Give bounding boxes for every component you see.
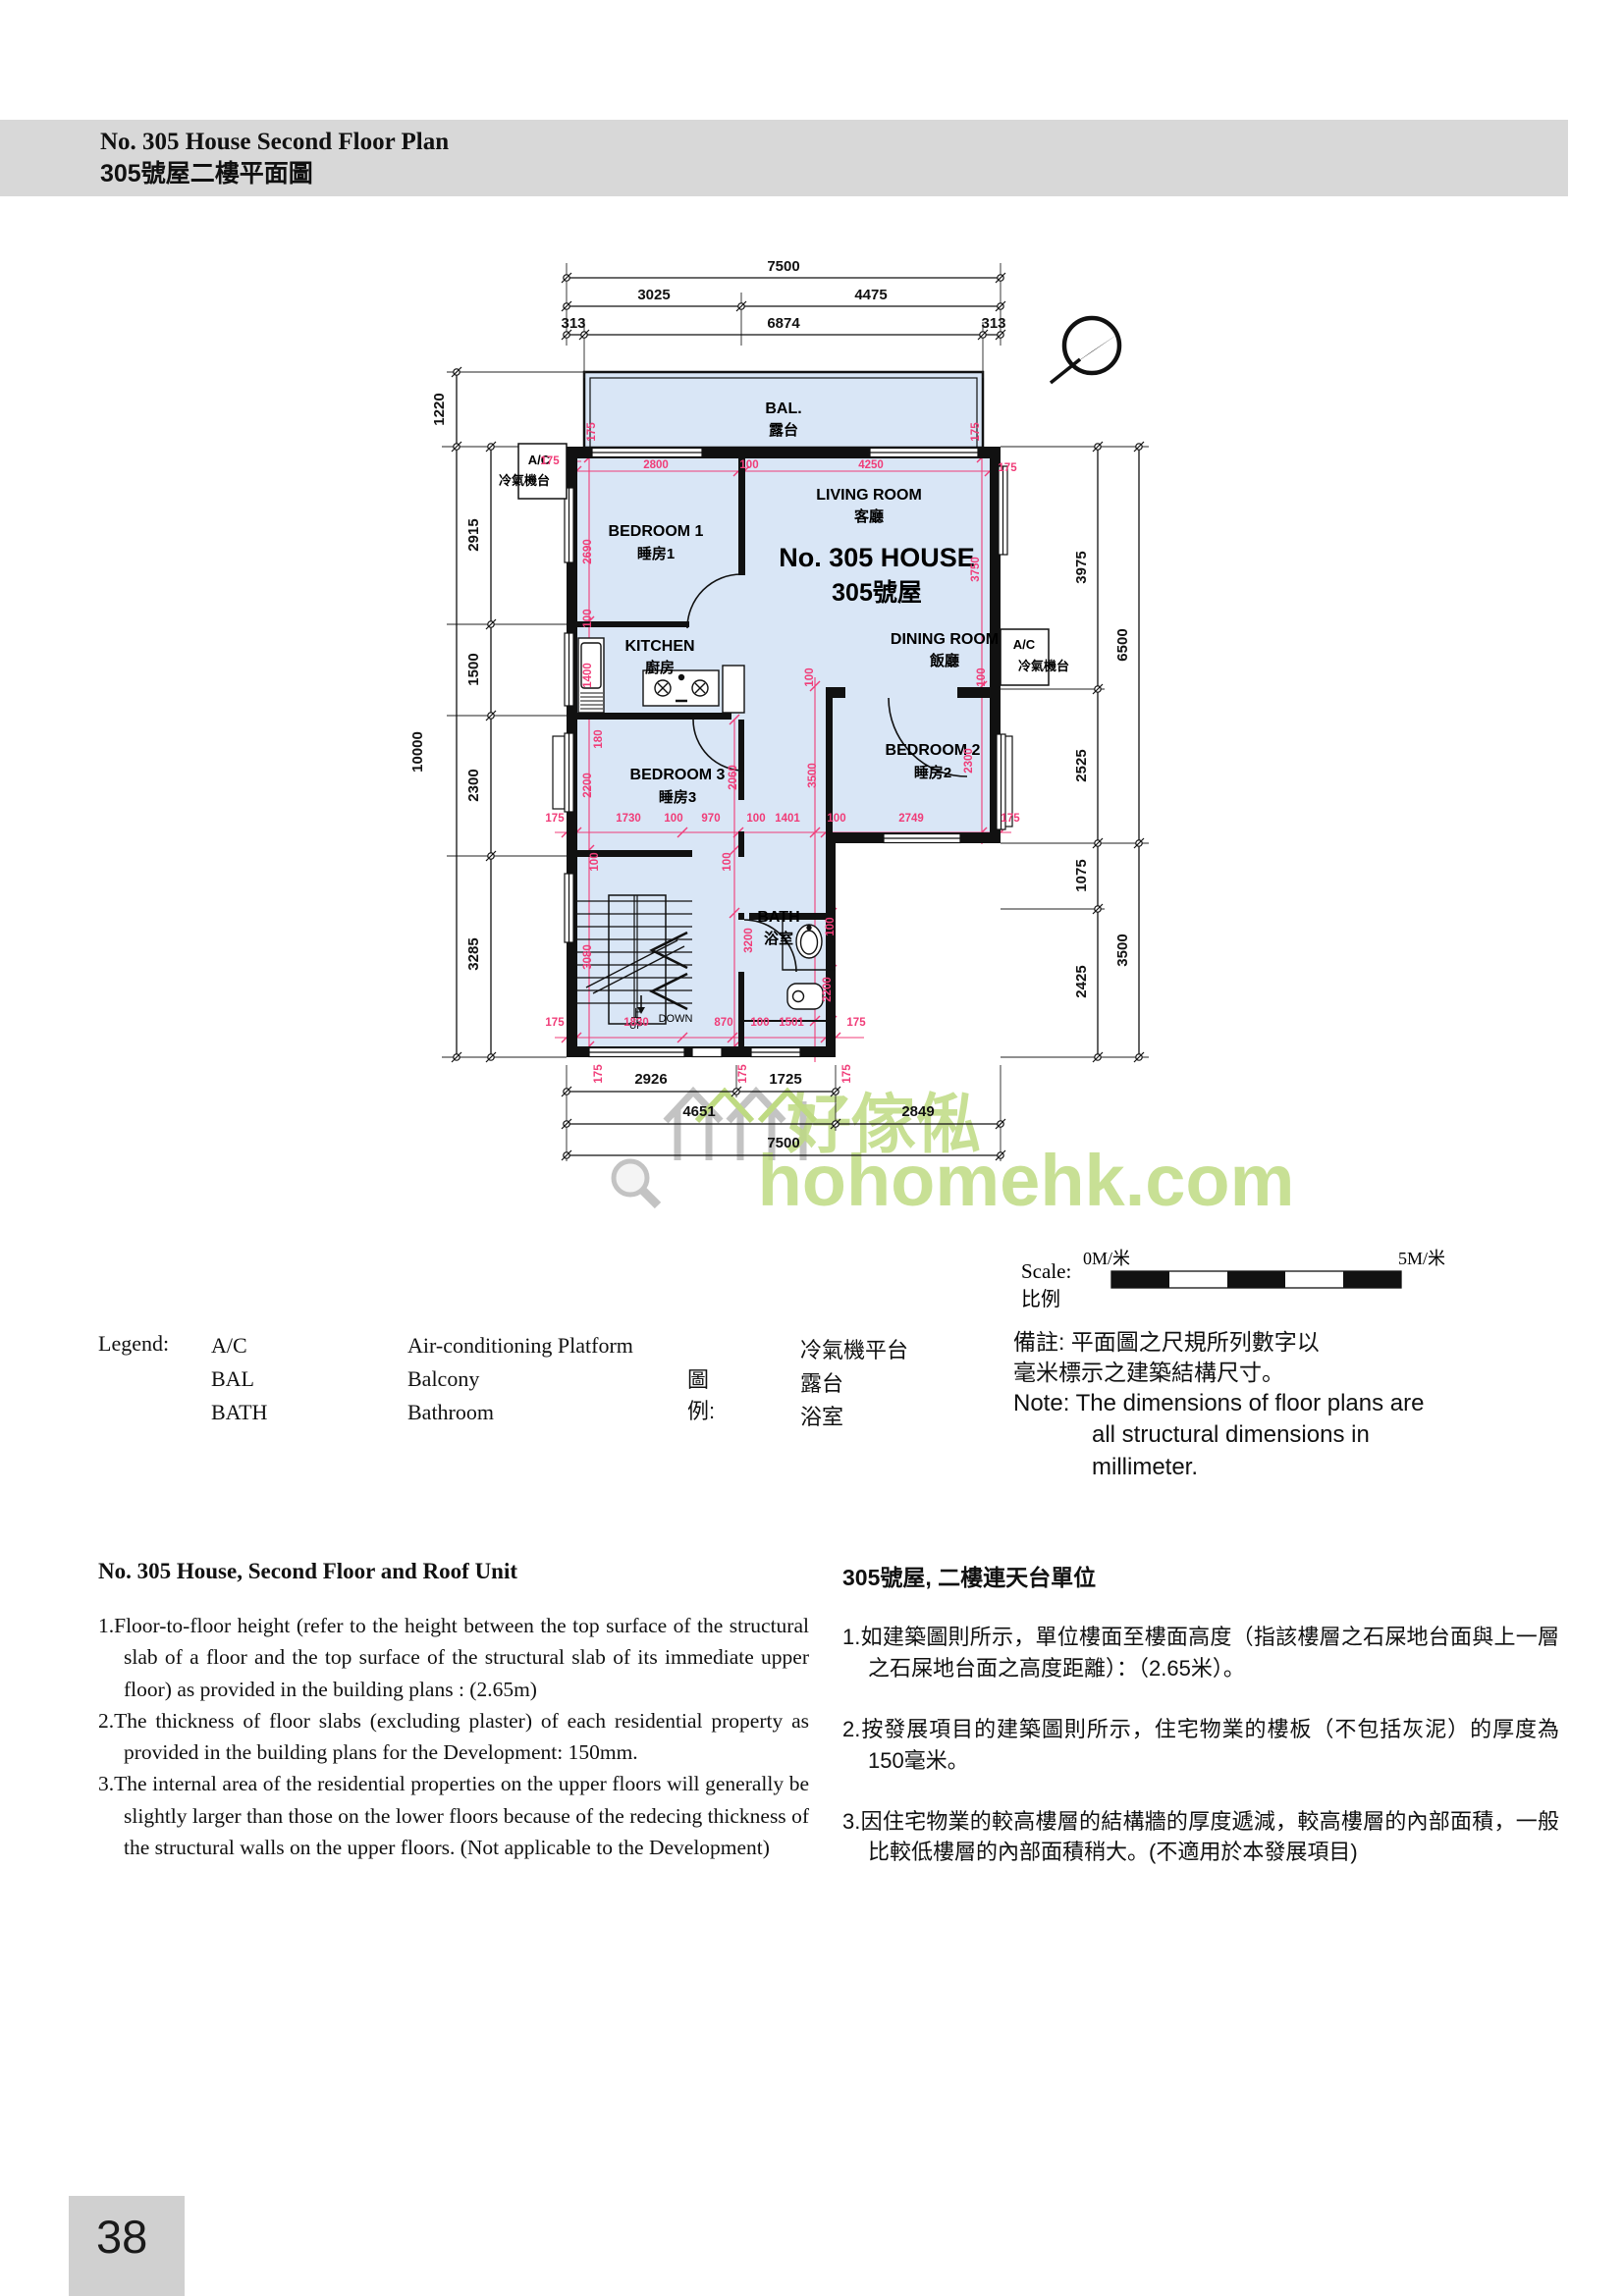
scale-label-zh: 比例	[1021, 1288, 1060, 1310]
legend-code: BAL	[211, 1366, 254, 1392]
brochure-page: No. 305 House Second Floor Plan 305號屋二樓平…	[0, 0, 1624, 2296]
legend-code: A/C	[211, 1333, 247, 1359]
dimension-label: 2425	[1073, 965, 1090, 997]
dimension-label: 2200	[582, 773, 594, 798]
legend-heading-en: Legend:	[98, 1331, 169, 1357]
dimension-label: 3500	[1114, 934, 1131, 966]
item-number: 1.	[842, 1625, 860, 1649]
dimension-label: 175	[737, 1064, 749, 1084]
dimension-label: 10000	[409, 731, 426, 773]
item-text: The internal area of the residential pro…	[114, 1772, 809, 1859]
dimension-label: 1075	[1073, 859, 1090, 891]
dimension-label: 180	[593, 729, 605, 748]
dimension-label: 100	[664, 813, 682, 825]
dimension-label: 175	[586, 422, 598, 442]
dimension-label: 175	[998, 462, 1017, 474]
dimension-label: 313	[981, 315, 1005, 332]
north-arrow-icon	[1051, 318, 1121, 383]
room-label-bedroom2-zh: 睡房2	[914, 764, 951, 781]
dimension-label: 2060	[728, 765, 739, 790]
legend-desc-zh: 浴室	[800, 1400, 843, 1431]
item-number: 2.	[98, 1709, 114, 1733]
dimension-label: 1725	[769, 1071, 801, 1088]
section-item: 3.The internal area of the residential p…	[98, 1768, 809, 1863]
room-label-living-en: LIVING ROOM	[816, 487, 922, 504]
legend-heading-zh: 圖例:	[687, 1362, 715, 1425]
item-text: Floor-to-floor height (refer to the heig…	[114, 1614, 809, 1701]
dimension-label: 7500	[767, 1135, 799, 1151]
item-number: 2.	[842, 1717, 860, 1741]
dimension-label: 100	[589, 852, 601, 871]
dimension-label: 175	[540, 455, 560, 467]
note-text-en-1: Note: The dimensions of floor plans are	[1013, 1388, 1593, 1419]
dimension-label: 2300	[465, 769, 482, 801]
dimension-label: 1830	[623, 1017, 649, 1029]
section-item: 2.按發展項目的建築圖則所示，住宅物業的樓板（不包括灰泥）的厚度為150毫米。	[842, 1714, 1559, 1777]
scale-end-label: 5M/米	[1398, 1249, 1445, 1268]
scale-label-en: Scale:	[1021, 1259, 1071, 1283]
dimension-label: 4651	[682, 1103, 715, 1120]
room-label-dining-en: DINING ROOM	[891, 631, 999, 648]
dimension-label: 2849	[901, 1103, 934, 1120]
dimension-label: 100	[582, 609, 594, 627]
stairs-down-en: DOWN	[659, 1013, 693, 1025]
ac-left-label-zh: 冷氣機台	[499, 473, 550, 488]
scale-start-label: 0M/米	[1083, 1249, 1130, 1268]
dimension-label: 2749	[898, 813, 924, 825]
dimension-label: 1401	[775, 813, 800, 825]
section-item: 2.The thickness of floor slabs (excludin…	[98, 1705, 809, 1769]
dimension-label: 3500	[807, 763, 819, 788]
dimension-label: 3975	[1073, 551, 1090, 583]
item-number: 3.	[98, 1772, 114, 1795]
dimension-label: 7500	[767, 258, 799, 275]
legend-code: BATH	[211, 1400, 267, 1425]
dimension-label: 970	[701, 813, 720, 825]
dimension-label: 6874	[767, 315, 800, 332]
dimension-label: 175	[593, 1064, 605, 1084]
dimension-label: 100	[746, 813, 765, 825]
dimension-label: 100	[750, 1017, 769, 1029]
dimension-label: 2300	[963, 748, 975, 774]
dimension-label: 100	[827, 813, 845, 825]
dimension-label: 175	[545, 813, 565, 825]
item-text: The thickness of floor slabs (excluding …	[114, 1709, 809, 1764]
item-text: 按發展項目的建築圖則所示，住宅物業的樓板（不包括灰泥）的厚度為150毫米。	[860, 1717, 1559, 1773]
dimension-label: 1220	[431, 393, 448, 425]
dimension-label: 100	[976, 667, 988, 686]
dimension-label: 313	[561, 315, 585, 332]
section-zh: 305號屋, 二樓連天台單位 1.如建築圖則所示，單位樓面至樓面高度（指該樓層之…	[842, 1559, 1559, 1897]
item-number: 1.	[98, 1614, 114, 1637]
dimension-label: 2915	[465, 518, 482, 551]
dimension-label: 3025	[637, 287, 670, 303]
room-label-kitchen-en: KITCHEN	[624, 638, 694, 655]
magnifier-icon	[614, 1161, 658, 1205]
dimension-label: 175	[841, 1064, 853, 1084]
page-number: 38	[96, 2210, 147, 2264]
dimension-label: 1730	[616, 813, 641, 825]
legend-desc-zh: 露台	[800, 1366, 843, 1398]
dimension-label: 3285	[465, 937, 482, 970]
dimension-label: 1501	[779, 1017, 804, 1029]
section-item: 1.如建築圖則所示，單位樓面至樓面高度（指該樓層之石屎地台面與上一層之石屎地台面…	[842, 1622, 1559, 1684]
ac-right-label-zh: 冷氣機台	[1018, 659, 1069, 673]
room-label-bedroom3-en: BEDROOM 3	[630, 767, 726, 783]
dimension-label: 2200	[822, 977, 834, 1002]
room-label-bath-zh: 浴室	[764, 930, 793, 947]
dimension-label: 2690	[582, 539, 594, 564]
room-label-bedroom3-zh: 睡房3	[659, 788, 696, 806]
dimension-label: 4475	[854, 287, 887, 303]
item-number: 3.	[842, 1809, 860, 1834]
dimension-label: 1400	[582, 663, 594, 688]
dimension-label: 2800	[643, 459, 669, 471]
scale-bar: Scale: 比例 0M/米 5M/米	[1021, 1249, 1445, 1310]
unit-name-zh: 305號屋	[832, 579, 922, 607]
note-text-zh-1: 平面圖之尺規所列數字以	[1071, 1329, 1320, 1355]
legend-desc-en: Bathroom	[407, 1400, 494, 1425]
page-number-box: 38	[69, 2196, 185, 2296]
dimension-label: 175	[1001, 813, 1020, 825]
dimension-label: 2525	[1073, 749, 1090, 781]
dimension-label: 3200	[743, 928, 755, 953]
dimension-label: 175	[545, 1017, 565, 1029]
dimension-label: 3750	[970, 557, 982, 582]
dimension-label: 870	[714, 1017, 732, 1029]
dimension-label: 175	[846, 1017, 866, 1029]
dimension-label: 100	[804, 667, 816, 686]
dimension-label: 6500	[1114, 628, 1131, 661]
item-text: 如建築圖則所示，單位樓面至樓面高度（指該樓層之石屎地台面與上一層之石屎地台面之高…	[860, 1625, 1559, 1681]
room-label-balcony-zh: 露台	[769, 421, 798, 439]
watermark: 好傢俬 hohomehk.com	[614, 1088, 1294, 1221]
room-label-bedroom1-zh: 睡房1	[637, 545, 675, 562]
dimension-label: 4250	[858, 459, 884, 471]
dimension-label: 100	[825, 917, 837, 935]
section-item: 1.Floor-to-floor height (refer to the he…	[98, 1610, 809, 1705]
note-text-zh-2: 毫米標示之建築結構尺寸。	[1013, 1358, 1593, 1388]
room-label-kitchen-zh: 廚房	[645, 659, 675, 676]
room-label-dining-zh: 飯廳	[929, 652, 959, 669]
dimension-label: 2926	[634, 1071, 667, 1088]
note-block: 備註: 平面圖之尺規所列數字以 毫米標示之建築結構尺寸。 Note: The d…	[1013, 1327, 1593, 1483]
note-text-en-2: all structural dimensions in	[1013, 1419, 1593, 1451]
legend-desc-zh: 冷氣機平台	[800, 1333, 908, 1364]
room-label-living-zh: 客廳	[853, 507, 884, 525]
note-text-en-3: millimeter.	[1013, 1452, 1593, 1483]
watermark-domain: hohomehk.com	[758, 1140, 1295, 1221]
dimension-label: 100	[739, 459, 758, 471]
note-prefix-zh: 備註:	[1013, 1329, 1064, 1355]
ac-right-label-en: A/C	[1013, 637, 1036, 652]
dimension-label: 1500	[465, 653, 482, 685]
floor-plan-drawing: 好傢俬 hohomehk.com	[0, 0, 1624, 2296]
item-text: 因住宅物業的較高樓層的結構牆的厚度遞減，較高樓層的內部面積，一般比較低樓層的內部…	[860, 1809, 1559, 1865]
unit-name-en: No. 305 HOUSE	[779, 543, 975, 572]
legend-desc-en: Air-conditioning Platform	[407, 1333, 633, 1359]
section-title-en: No. 305 House, Second Floor and Roof Uni…	[98, 1559, 809, 1584]
dimension-label: 175	[970, 422, 982, 442]
room-label-balcony-en: BAL.	[765, 400, 801, 417]
dimension-label: 100	[722, 852, 733, 871]
section-title-zh: 305號屋, 二樓連天台單位	[842, 1559, 1559, 1592]
section-en: No. 305 House, Second Floor and Roof Uni…	[98, 1559, 809, 1863]
dimension-label: 3080	[582, 944, 594, 970]
section-item: 3.因住宅物業的較高樓層的結構牆的厚度遞減，較高樓層的內部面積，一般比較低樓層的…	[842, 1806, 1559, 1869]
room-label-bedroom1-en: BEDROOM 1	[609, 523, 704, 540]
room-label-bath-en: BATH	[757, 909, 799, 926]
legend-desc-en: Balcony	[407, 1366, 479, 1392]
